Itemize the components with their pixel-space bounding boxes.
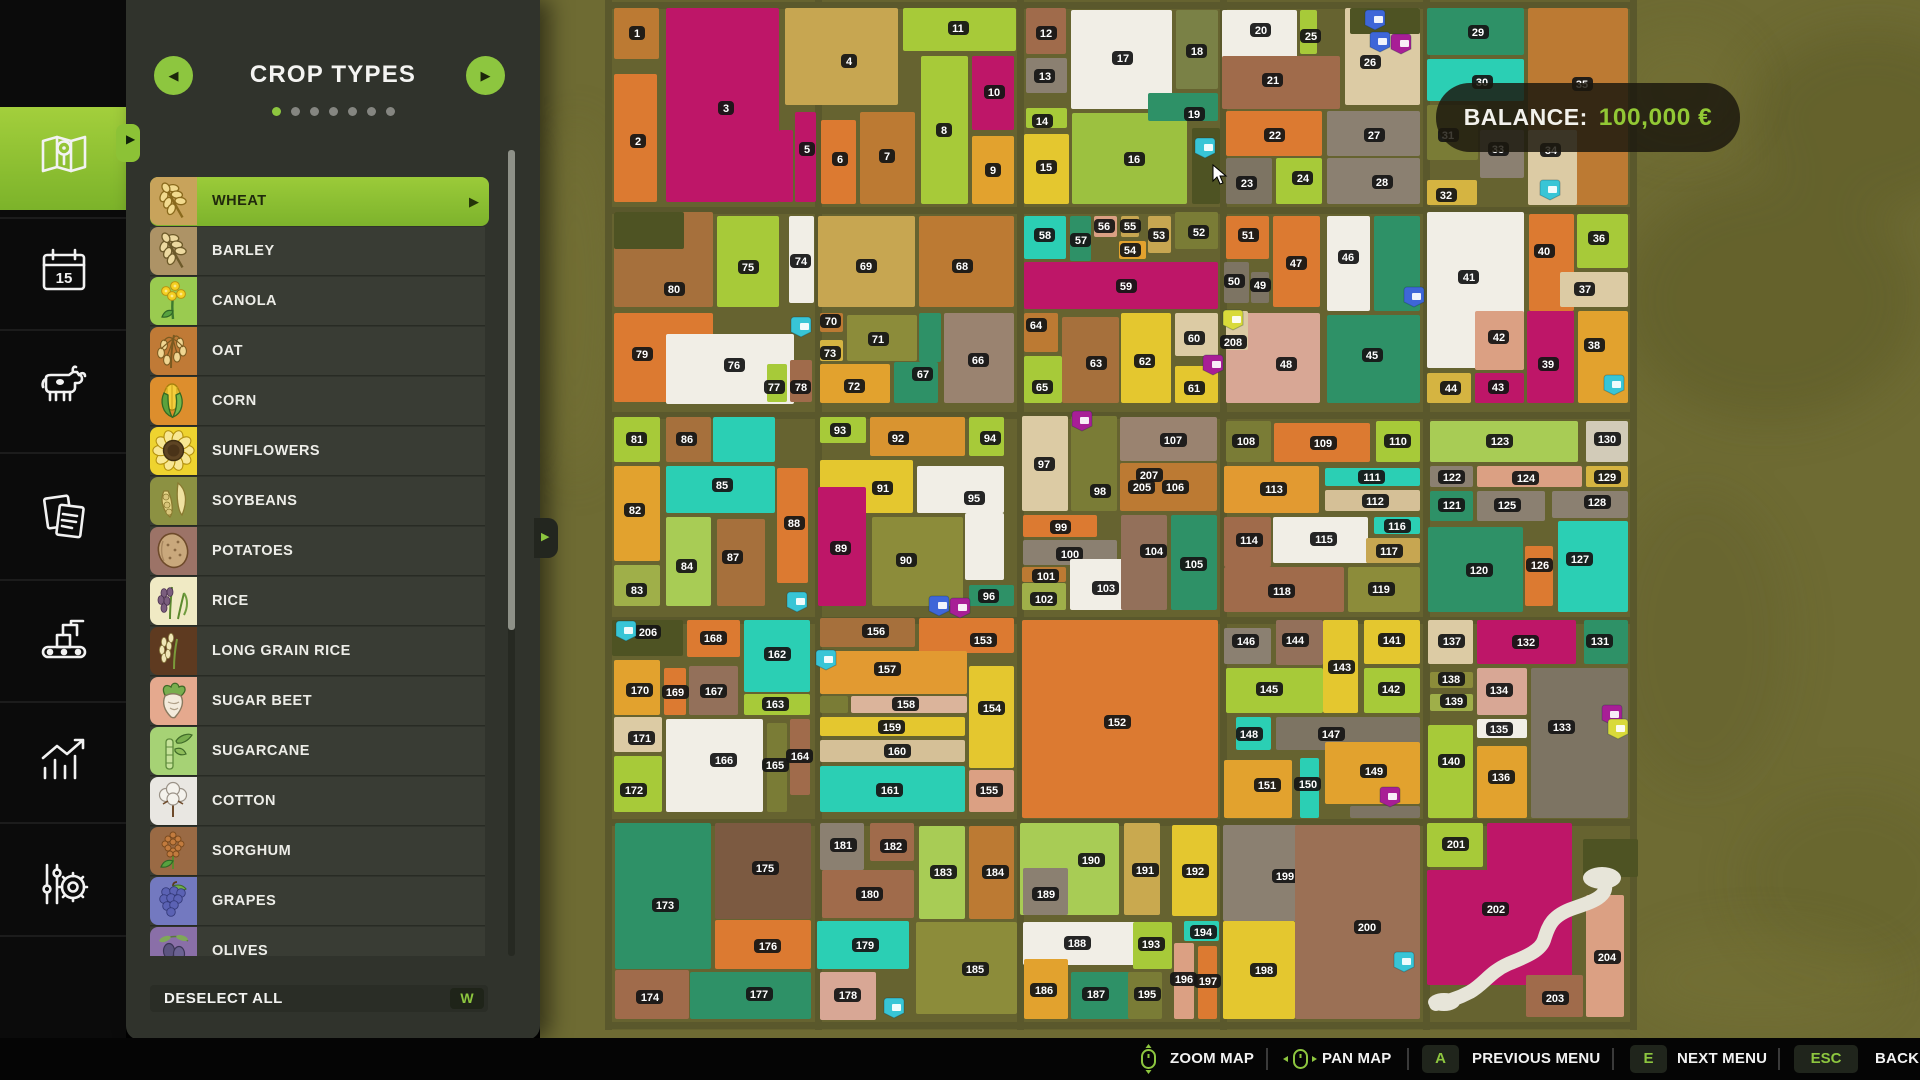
svg-text:128: 128: [1588, 497, 1606, 509]
svg-text:59: 59: [1120, 281, 1132, 293]
svg-text:9: 9: [990, 165, 996, 177]
svg-text:28: 28: [1376, 177, 1388, 189]
svg-text:148: 148: [1240, 729, 1258, 741]
svg-text:144: 144: [1286, 635, 1305, 647]
svg-text:170: 170: [631, 685, 649, 697]
svg-text:104: 104: [1145, 546, 1164, 558]
svg-text:90: 90: [900, 555, 912, 567]
svg-text:177: 177: [750, 989, 768, 1001]
svg-text:15: 15: [56, 270, 73, 287]
svg-text:82: 82: [629, 505, 641, 517]
svg-text:109: 109: [1314, 438, 1332, 450]
svg-text:102: 102: [1035, 594, 1053, 606]
svg-text:206: 206: [639, 627, 657, 639]
svg-text:198: 198: [1255, 965, 1273, 977]
svg-text:73: 73: [824, 348, 836, 360]
svg-text:80: 80: [668, 284, 680, 296]
svg-text:199: 199: [1276, 871, 1294, 883]
svg-text:14: 14: [1036, 116, 1049, 128]
svg-text:169: 169: [666, 687, 684, 699]
svg-text:160: 160: [888, 746, 906, 758]
svg-text:189: 189: [1037, 889, 1055, 901]
svg-text:70: 70: [825, 316, 837, 328]
svg-text:40: 40: [1538, 246, 1550, 258]
svg-text:184: 184: [986, 867, 1005, 879]
svg-text:51: 51: [1242, 230, 1254, 242]
svg-text:95: 95: [968, 493, 980, 505]
svg-text:163: 163: [766, 699, 784, 711]
svg-text:66: 66: [972, 355, 984, 367]
svg-text:52: 52: [1193, 227, 1205, 239]
svg-text:155: 155: [980, 785, 998, 797]
svg-text:146: 146: [1237, 636, 1255, 648]
svg-text:207: 207: [1140, 470, 1158, 482]
svg-text:67: 67: [917, 369, 929, 381]
svg-text:140: 140: [1442, 756, 1460, 768]
svg-text:1: 1: [634, 28, 640, 40]
svg-text:98: 98: [1094, 486, 1106, 498]
svg-text:61: 61: [1188, 383, 1200, 395]
svg-text:29: 29: [1472, 27, 1484, 39]
svg-text:93: 93: [834, 425, 846, 437]
svg-text:156: 156: [867, 626, 885, 638]
svg-text:87: 87: [727, 552, 739, 564]
svg-text:50: 50: [1228, 276, 1240, 288]
svg-text:32: 32: [1440, 190, 1452, 202]
svg-text:130: 130: [1598, 434, 1616, 446]
svg-text:17: 17: [1117, 53, 1129, 65]
svg-text:188: 188: [1068, 938, 1086, 950]
svg-text:8: 8: [941, 125, 947, 137]
svg-text:7: 7: [884, 151, 890, 163]
svg-text:197: 197: [1199, 976, 1217, 988]
svg-text:171: 171: [633, 733, 651, 745]
svg-text:25: 25: [1305, 31, 1317, 43]
svg-text:147: 147: [1322, 729, 1340, 741]
svg-text:11: 11: [952, 23, 964, 35]
svg-text:18: 18: [1191, 46, 1203, 58]
svg-text:43: 43: [1492, 382, 1504, 394]
svg-text:190: 190: [1082, 855, 1100, 867]
svg-text:152: 152: [1108, 717, 1126, 729]
svg-text:53: 53: [1153, 230, 1165, 242]
svg-text:123: 123: [1491, 436, 1509, 448]
svg-text:71: 71: [872, 334, 884, 346]
svg-text:42: 42: [1493, 332, 1505, 344]
svg-text:38: 38: [1588, 340, 1600, 352]
svg-text:72: 72: [848, 381, 860, 393]
svg-text:161: 161: [881, 785, 899, 797]
svg-text:126: 126: [1531, 560, 1549, 572]
svg-text:196: 196: [1175, 974, 1193, 986]
svg-text:24: 24: [1297, 173, 1310, 185]
svg-text:10: 10: [988, 87, 1000, 99]
svg-text:64: 64: [1030, 320, 1043, 332]
svg-text:81: 81: [631, 434, 643, 446]
svg-text:118: 118: [1273, 586, 1291, 598]
svg-text:154: 154: [983, 703, 1002, 715]
svg-text:56: 56: [1098, 221, 1110, 233]
svg-text:195: 195: [1138, 989, 1156, 1001]
svg-text:79: 79: [636, 349, 648, 361]
svg-text:166: 166: [715, 755, 733, 767]
svg-text:116: 116: [1388, 521, 1406, 533]
svg-text:94: 94: [984, 433, 997, 445]
svg-text:202: 202: [1487, 904, 1505, 916]
svg-text:200: 200: [1358, 922, 1376, 934]
svg-text:135: 135: [1490, 724, 1508, 736]
svg-text:41: 41: [1463, 272, 1475, 284]
svg-text:47: 47: [1290, 258, 1302, 270]
svg-text:180: 180: [861, 889, 879, 901]
svg-text:103: 103: [1097, 583, 1115, 595]
svg-text:182: 182: [884, 841, 902, 853]
svg-text:108: 108: [1237, 436, 1255, 448]
svg-text:85: 85: [716, 480, 728, 492]
svg-text:149: 149: [1365, 766, 1383, 778]
svg-text:153: 153: [974, 635, 992, 647]
svg-text:145: 145: [1260, 684, 1278, 696]
svg-text:172: 172: [625, 785, 643, 797]
svg-text:58: 58: [1039, 230, 1051, 242]
svg-text:208: 208: [1224, 337, 1242, 349]
svg-text:97: 97: [1038, 459, 1050, 471]
svg-text:45: 45: [1366, 350, 1378, 362]
svg-text:69: 69: [860, 261, 872, 273]
svg-text:68: 68: [956, 261, 968, 273]
svg-text:26: 26: [1364, 57, 1376, 69]
svg-text:173: 173: [656, 900, 674, 912]
svg-text:4: 4: [846, 56, 853, 68]
svg-text:78: 78: [795, 382, 807, 394]
svg-text:129: 129: [1598, 472, 1616, 484]
svg-text:143: 143: [1333, 662, 1351, 674]
svg-text:88: 88: [788, 518, 800, 530]
svg-text:151: 151: [1258, 780, 1276, 792]
svg-text:60: 60: [1188, 333, 1200, 345]
svg-text:96: 96: [983, 591, 995, 603]
svg-text:133: 133: [1553, 722, 1571, 734]
svg-text:174: 174: [641, 992, 660, 1004]
svg-text:91: 91: [877, 483, 889, 495]
svg-text:107: 107: [1164, 435, 1182, 447]
svg-text:162: 162: [768, 649, 786, 661]
svg-text:124: 124: [1517, 473, 1536, 485]
svg-text:138: 138: [1442, 674, 1460, 686]
svg-text:175: 175: [756, 863, 774, 875]
svg-text:181: 181: [834, 840, 852, 852]
svg-text:164: 164: [791, 751, 810, 763]
svg-text:127: 127: [1571, 554, 1589, 566]
svg-text:113: 113: [1265, 484, 1283, 496]
svg-text:115: 115: [1315, 534, 1333, 546]
svg-text:178: 178: [839, 990, 857, 1002]
svg-text:49: 49: [1254, 280, 1266, 292]
svg-text:125: 125: [1498, 500, 1516, 512]
svg-text:86: 86: [681, 434, 693, 446]
svg-text:63: 63: [1090, 358, 1102, 370]
svg-text:65: 65: [1036, 382, 1048, 394]
svg-text:137: 137: [1443, 636, 1461, 648]
svg-text:187: 187: [1087, 989, 1105, 1001]
svg-text:57: 57: [1075, 235, 1087, 247]
svg-text:3: 3: [723, 103, 729, 115]
svg-text:134: 134: [1490, 685, 1509, 697]
svg-text:191: 191: [1136, 865, 1154, 877]
svg-text:21: 21: [1267, 75, 1279, 87]
svg-text:186: 186: [1035, 985, 1053, 997]
svg-text:84: 84: [681, 561, 694, 573]
svg-text:13: 13: [1039, 71, 1051, 83]
svg-text:122: 122: [1443, 472, 1461, 484]
svg-text:54: 54: [1124, 245, 1137, 257]
svg-text:101: 101: [1037, 571, 1055, 583]
svg-text:5: 5: [804, 144, 810, 156]
svg-text:76: 76: [728, 360, 740, 372]
svg-text:150: 150: [1299, 779, 1317, 791]
svg-text:48: 48: [1280, 359, 1292, 371]
svg-text:20: 20: [1255, 25, 1267, 37]
svg-text:46: 46: [1342, 252, 1354, 264]
svg-text:75: 75: [742, 262, 754, 274]
svg-text:22: 22: [1269, 130, 1281, 142]
svg-text:167: 167: [705, 686, 723, 698]
svg-text:12: 12: [1040, 28, 1052, 40]
svg-text:111: 111: [1363, 472, 1380, 484]
svg-text:132: 132: [1517, 637, 1535, 649]
svg-text:179: 179: [856, 940, 874, 952]
svg-text:121: 121: [1443, 500, 1461, 512]
svg-text:92: 92: [892, 433, 904, 445]
svg-text:117: 117: [1380, 546, 1398, 558]
svg-text:158: 158: [897, 699, 915, 711]
svg-text:168: 168: [704, 633, 722, 645]
svg-text:99: 99: [1055, 522, 1067, 534]
svg-text:106: 106: [1166, 482, 1184, 494]
svg-text:105: 105: [1185, 559, 1203, 571]
svg-text:112: 112: [1366, 496, 1384, 508]
svg-text:114: 114: [1240, 535, 1259, 547]
svg-text:194: 194: [1194, 927, 1213, 939]
svg-text:39: 39: [1542, 359, 1554, 371]
svg-text:120: 120: [1470, 565, 1488, 577]
svg-text:157: 157: [878, 664, 896, 676]
svg-text:62: 62: [1139, 356, 1151, 368]
svg-text:141: 141: [1383, 635, 1401, 647]
svg-text:27: 27: [1368, 130, 1380, 142]
svg-text:74: 74: [795, 256, 808, 268]
svg-text:159: 159: [883, 722, 901, 734]
svg-text:204: 204: [1598, 952, 1617, 964]
svg-text:37: 37: [1579, 284, 1591, 296]
svg-text:2: 2: [635, 136, 641, 148]
svg-text:15: 15: [1040, 162, 1052, 174]
svg-text:203: 203: [1546, 993, 1564, 1005]
svg-text:23: 23: [1241, 178, 1253, 190]
svg-text:131: 131: [1591, 636, 1609, 648]
svg-text:110: 110: [1389, 436, 1407, 448]
svg-text:6: 6: [837, 154, 843, 166]
svg-text:55: 55: [1124, 221, 1136, 233]
svg-text:201: 201: [1447, 839, 1465, 851]
svg-text:119: 119: [1372, 584, 1390, 596]
svg-text:205: 205: [1133, 482, 1151, 494]
svg-text:136: 136: [1492, 772, 1510, 784]
svg-text:165: 165: [766, 760, 784, 772]
svg-text:44: 44: [1445, 383, 1458, 395]
svg-text:89: 89: [835, 543, 847, 555]
svg-text:176: 176: [759, 941, 777, 953]
svg-text:77: 77: [768, 382, 780, 394]
svg-text:139: 139: [1445, 696, 1463, 708]
svg-text:183: 183: [934, 867, 952, 879]
svg-text:185: 185: [966, 964, 984, 976]
svg-text:16: 16: [1128, 154, 1140, 166]
svg-text:19: 19: [1188, 109, 1200, 121]
svg-text:83: 83: [631, 585, 643, 597]
svg-text:193: 193: [1142, 939, 1160, 951]
svg-text:142: 142: [1382, 684, 1400, 696]
svg-text:36: 36: [1593, 233, 1605, 245]
svg-text:192: 192: [1186, 866, 1204, 878]
